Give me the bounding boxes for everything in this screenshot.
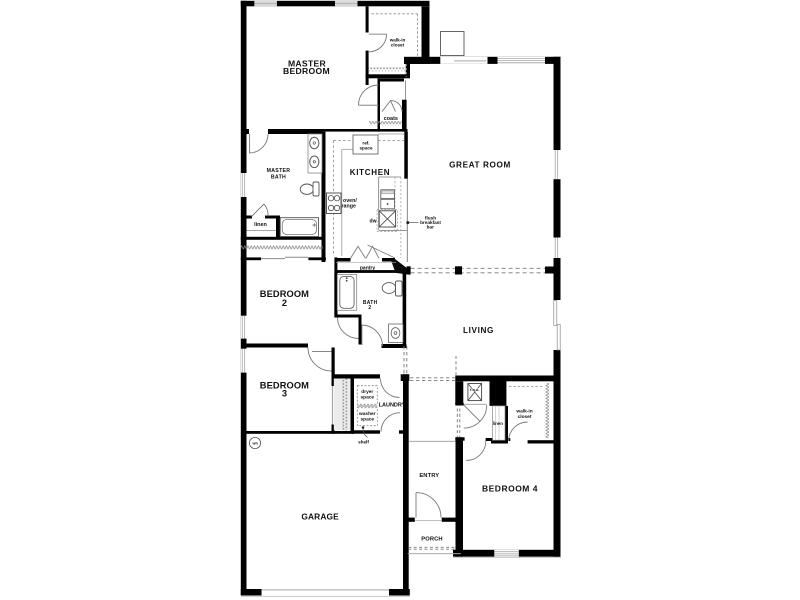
svg-text:LIVING: LIVING (463, 326, 494, 335)
svg-text:closet: closet (391, 43, 405, 48)
svg-text:bar: bar (427, 224, 434, 229)
svg-text:2: 2 (282, 298, 287, 308)
svg-text:space: space (359, 146, 372, 151)
svg-text:GARAGE: GARAGE (301, 512, 339, 522)
svg-text:GREAT ROOM: GREAT ROOM (449, 160, 511, 169)
svg-text:space: space (360, 396, 374, 401)
svg-text:f.a.u.: f.a.u. (470, 387, 479, 392)
svg-text:space: space (360, 418, 374, 423)
svg-text:dw: dw (370, 219, 377, 225)
svg-text:PORCH: PORCH (421, 537, 442, 543)
svg-text:KITCHEN: KITCHEN (350, 168, 390, 177)
svg-text:coats: coats (384, 116, 398, 122)
svg-text:BATH: BATH (271, 174, 286, 180)
svg-text:3: 3 (282, 388, 287, 398)
svg-text:pantry: pantry (360, 265, 376, 271)
svg-text:MASTER: MASTER (267, 168, 291, 174)
svg-text:ENTRY: ENTRY (419, 473, 439, 479)
svg-text:range: range (342, 204, 356, 210)
svg-text:closet: closet (518, 414, 532, 420)
svg-text:2: 2 (368, 305, 371, 311)
svg-text:walk-in: walk-in (515, 409, 532, 415)
svg-text:linen: linen (254, 222, 267, 228)
svg-text:BEDROOM: BEDROOM (283, 66, 330, 76)
svg-text:shelf: shelf (358, 440, 369, 445)
svg-text:dryer: dryer (361, 389, 373, 395)
svg-text:linen: linen (493, 421, 504, 426)
svg-text:BEDROOM 4: BEDROOM 4 (482, 484, 538, 494)
svg-text:wh: wh (252, 442, 259, 446)
svg-text:LAUNDRY: LAUNDRY (379, 403, 406, 409)
svg-text:washer: washer (358, 411, 376, 417)
